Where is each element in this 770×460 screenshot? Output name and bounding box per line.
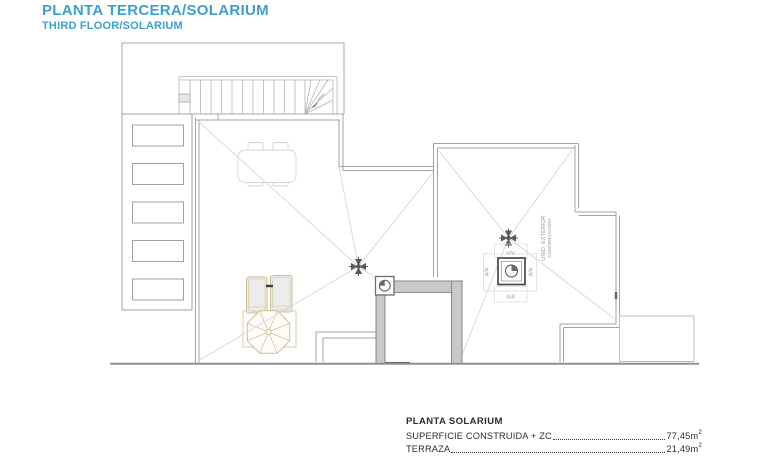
dot-leader <box>451 452 665 453</box>
planter-box <box>620 316 695 362</box>
sun-lounger-area <box>243 276 296 354</box>
summary-row-value: 21,49m2 <box>666 443 702 455</box>
valve-label: V/V <box>506 251 515 257</box>
summary-row-label: TERRAZA <box>406 443 450 455</box>
table <box>238 150 296 183</box>
elevator-shaft <box>376 277 463 365</box>
summary-row-value: 77,45m2 <box>666 430 702 442</box>
summary-row-label: SUPERFICIE CONSTRUIDA + ZC <box>406 430 552 442</box>
summary-heading: PLANTA SOLARIUM <box>406 416 702 427</box>
floor-plan-drawing: V/V A/A A/A A/A UNID. EXTERIOR CONDENSAD… <box>0 0 770 460</box>
sun-lounger <box>271 276 293 313</box>
downpipe-symbol <box>376 277 395 296</box>
ac-label-bottom: A/A <box>506 295 515 301</box>
area-summary: PLANTA SOLARIUM SUPERFICIE CONSTRUIDA + … <box>406 416 702 455</box>
ac-label-left: A/A <box>485 267 491 276</box>
staircase <box>179 77 337 115</box>
drain-symbol-right <box>499 229 518 248</box>
parasol <box>247 311 289 353</box>
ac-label-right: A/A <box>529 267 535 276</box>
louver-column <box>122 114 192 310</box>
page: PLANTA TERCERA/SOLARIUM THIRD FLOOR/SOLA… <box>0 0 770 460</box>
summary-row: SUPERFICIE CONSTRUIDA + ZC 77,45m2 <box>406 429 702 442</box>
dot-leader <box>553 439 666 440</box>
condenser-unit: V/V A/A A/A A/A UNID. EXTERIOR CONDENSAD… <box>484 215 553 302</box>
summary-row: TERRAZA 21,49m2 <box>406 442 702 455</box>
drain-symbol-left <box>349 257 368 276</box>
dining-table-set <box>238 143 296 187</box>
left-terrace-slope-lines <box>198 122 434 361</box>
condenser-label-line2: CONDENSADORA <box>547 217 552 257</box>
top-block <box>122 43 344 114</box>
sun-lounger <box>247 277 268 313</box>
